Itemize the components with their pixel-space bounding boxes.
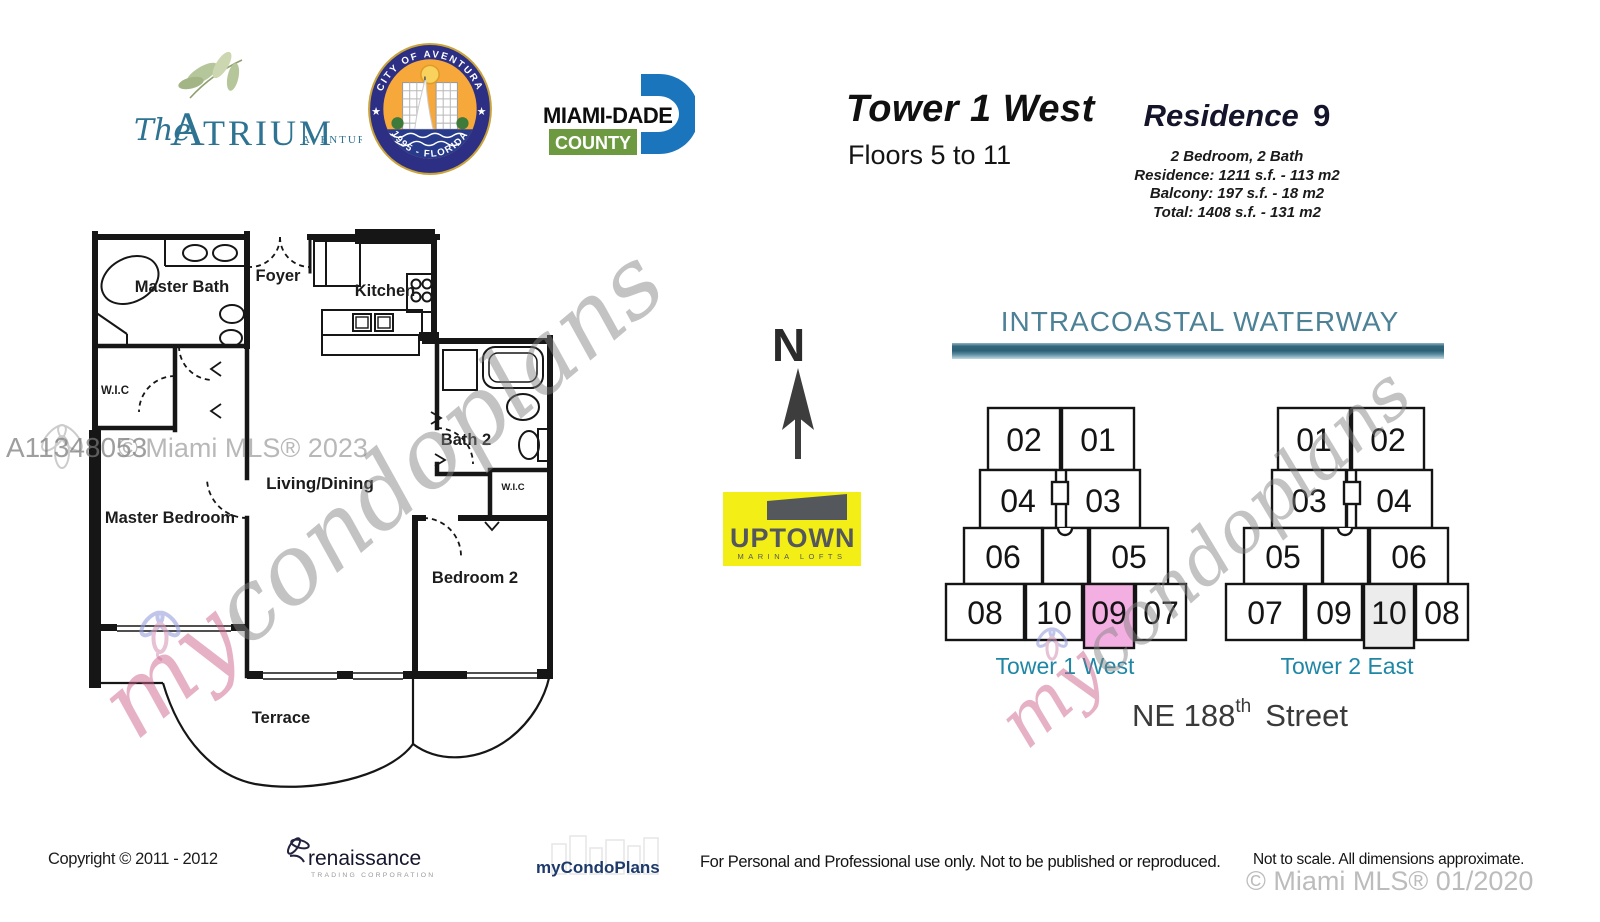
unit-number: 03 — [1085, 483, 1121, 519]
unit-number: 07 — [1247, 595, 1283, 631]
leaf-icon — [177, 50, 242, 98]
page-title: Tower 1 West — [846, 88, 1095, 131]
unit-number: 03 — [1291, 483, 1327, 519]
miami-dade-county: COUNTY — [555, 133, 631, 153]
unit-number: 05 — [1265, 539, 1301, 575]
renaissance-trefoil-icon — [286, 836, 310, 862]
tower1-keyplan: 02 01 04 03 06 05 08 10 09 07 — [940, 400, 1190, 652]
unit-floorplan: Master Bath Foyer Kitchen W.I.C Bath 2 W… — [85, 226, 565, 801]
room-label-bedroom2: Bedroom 2 — [432, 569, 518, 587]
room-label-bath2: Bath 2 — [441, 431, 491, 449]
mls-watermark-2023: A11348053 © Miami MLS® 2023 — [6, 432, 147, 468]
miami-dade-name: MIAMI-DADE — [543, 103, 672, 128]
room-label-terrace: Terrace — [252, 709, 310, 727]
mls-watermark-2020: © Miami MLS® 01/2020 — [1246, 866, 1533, 897]
unit-number: 08 — [967, 595, 1003, 631]
renaissance-logo: renaissance TRADING CORPORATION — [280, 830, 440, 882]
street-label: NE 188thStreet — [1090, 696, 1390, 734]
mycondoplans-logo: myCondoPlans — [532, 832, 672, 880]
unit-number: 04 — [1000, 483, 1036, 519]
atrium-initial: A — [170, 103, 205, 150]
residence-specs: 2 Bedroom, 2 Bath Residence: 1211 s.f. -… — [1087, 148, 1387, 222]
seal-star-right-icon: ★ — [477, 106, 487, 118]
room-label-foyer: Foyer — [256, 267, 302, 285]
uptown-logo: UPTOWN MARINA LOFTS — [723, 492, 861, 566]
atrium-logo: The A TRIUM AVENTURA — [90, 50, 362, 150]
brand-name: myCondoPlans — [536, 858, 660, 878]
uptown-tagline: MARINA LOFTS — [737, 552, 846, 561]
scale-disclaimer: Not to scale. All dimensions approximate… — [1253, 851, 1524, 869]
miami-dade-logo: MIAMI-DADE COUNTY — [543, 70, 695, 164]
trefoil-watermark-icon — [134, 600, 186, 662]
mls-text: © Miami MLS® 2023 — [118, 433, 368, 464]
residence-title: Residence 9 — [1087, 98, 1387, 134]
unit-number: 02 — [1006, 422, 1042, 458]
unit-number: 02 — [1370, 422, 1406, 458]
unit-number: 07 — [1143, 595, 1179, 631]
room-label-kitchen: Kitchen — [355, 282, 416, 300]
room-label-wic-bedroom2: W.I.C — [501, 482, 524, 493]
renaissance-name: renaissance — [308, 847, 421, 870]
unit-number: 01 — [1296, 422, 1332, 458]
unit-number: 06 — [985, 539, 1021, 575]
residence-number: 9 — [1313, 98, 1330, 133]
spec-bed-bath: 2 Bedroom, 2 Bath — [1087, 148, 1387, 167]
spec-balcony-area: Balcony: 197 s.f. - 18 m2 — [1087, 185, 1387, 204]
unit-number: 10 — [1371, 595, 1407, 631]
copyright-text: Copyright © 2011 - 2012 — [48, 850, 218, 869]
uptown-roof-icon — [767, 494, 847, 520]
unit-number: 08 — [1424, 595, 1460, 631]
waterway-label: INTRACOASTAL WATERWAY — [975, 306, 1425, 338]
room-label-master-bath: Master Bath — [135, 278, 229, 296]
renaissance-sub: TRADING CORPORATION — [311, 872, 435, 879]
spec-total-area: Total: 1408 s.f. - 131 m2 — [1087, 204, 1387, 223]
double-sink-icon — [165, 239, 247, 266]
unit-number: 04 — [1376, 483, 1412, 519]
waterway-bar — [952, 343, 1444, 359]
unit-number: 06 — [1391, 539, 1427, 575]
tower1-core — [1043, 528, 1088, 584]
unit-number: 05 — [1111, 539, 1147, 575]
room-label-living-dining: Living/Dining — [266, 474, 374, 493]
street-ordinal: th — [1235, 696, 1251, 717]
tower2-label: Tower 2 East — [1222, 653, 1472, 680]
aventura-seal-icon: CITY OF AVENTURA 1995 - FLORIDA ★ ★ — [366, 42, 494, 178]
toilet-bidet-icon — [220, 305, 244, 346]
unit-number: 09 — [1316, 595, 1352, 631]
unit-number: 09 — [1091, 595, 1127, 631]
trefoil-watermark-icon — [1032, 618, 1072, 668]
usage-notice: For Personal and Professional use only. … — [700, 853, 1220, 872]
atrium-city: AVENTURA — [302, 134, 362, 146]
north-arrow-icon — [770, 364, 826, 460]
tower2-core — [1323, 528, 1368, 584]
seal-star-left-icon: ★ — [371, 106, 381, 118]
floors-subtitle: Floors 5 to 11 — [848, 140, 1011, 171]
street-name: Street — [1265, 698, 1348, 733]
bathtub-icon — [93, 246, 167, 346]
room-label-master-bedroom: Master Bedroom — [105, 509, 235, 527]
terrace-edge — [101, 676, 549, 787]
spec-residence-area: Residence: 1211 s.f. - 113 m2 — [1087, 167, 1387, 186]
unit-number: 01 — [1080, 422, 1116, 458]
street-number: NE 188 — [1132, 698, 1235, 733]
tower2-keyplan: 01 02 03 04 05 06 07 09 10 08 — [1222, 400, 1472, 652]
residence-label: Residence — [1144, 98, 1299, 133]
floorplan-sheet: The A TRIUM AVENTURA — [0, 0, 1600, 922]
uptown-name: UPTOWN — [730, 523, 856, 553]
room-label-wic-master: W.I.C — [101, 385, 129, 397]
